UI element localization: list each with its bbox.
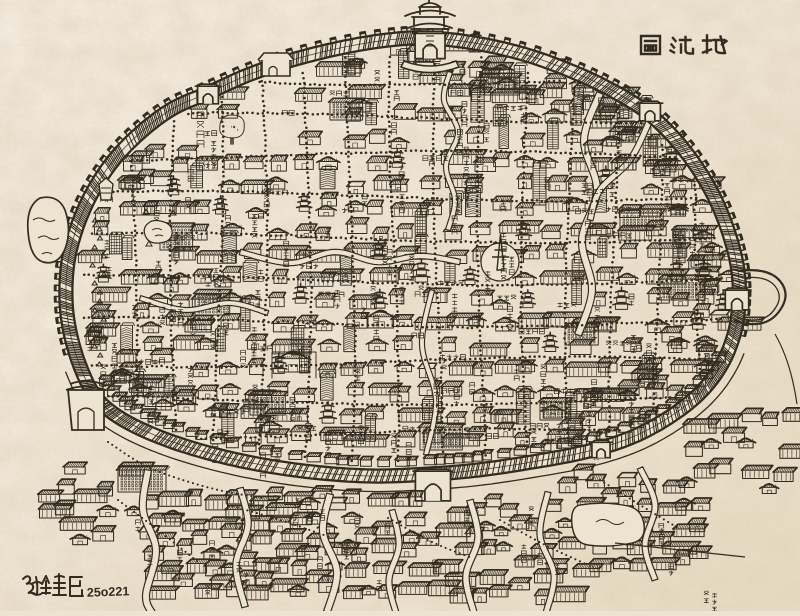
svg-text:25o221: 25o221 [87,584,130,599]
